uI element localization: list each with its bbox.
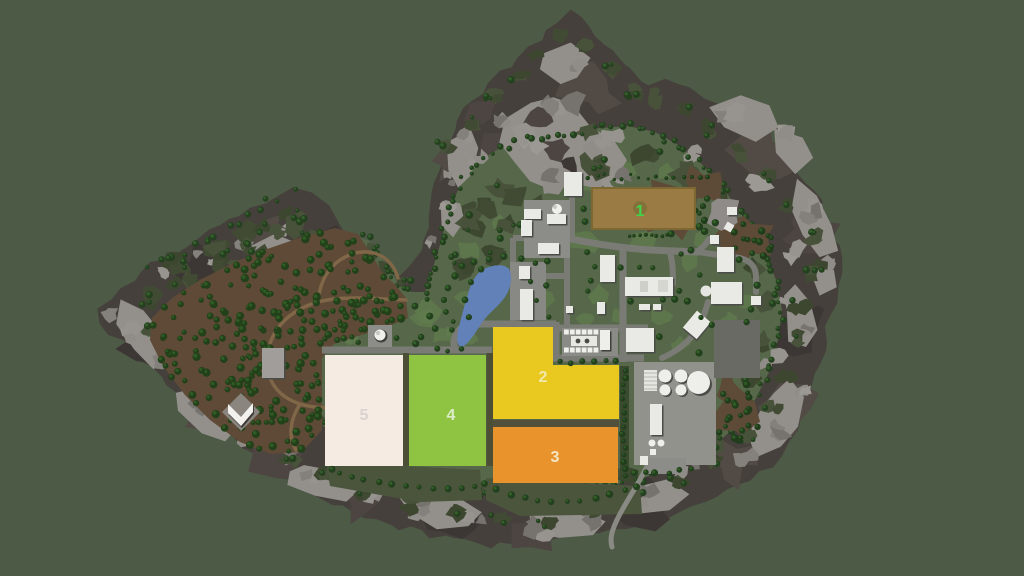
- svg-text:5: 5: [360, 407, 369, 424]
- svg-text:2: 2: [539, 369, 548, 386]
- svg-text:3: 3: [551, 449, 560, 466]
- svg-text:1: 1: [636, 203, 645, 220]
- svg-text:4: 4: [447, 407, 456, 424]
